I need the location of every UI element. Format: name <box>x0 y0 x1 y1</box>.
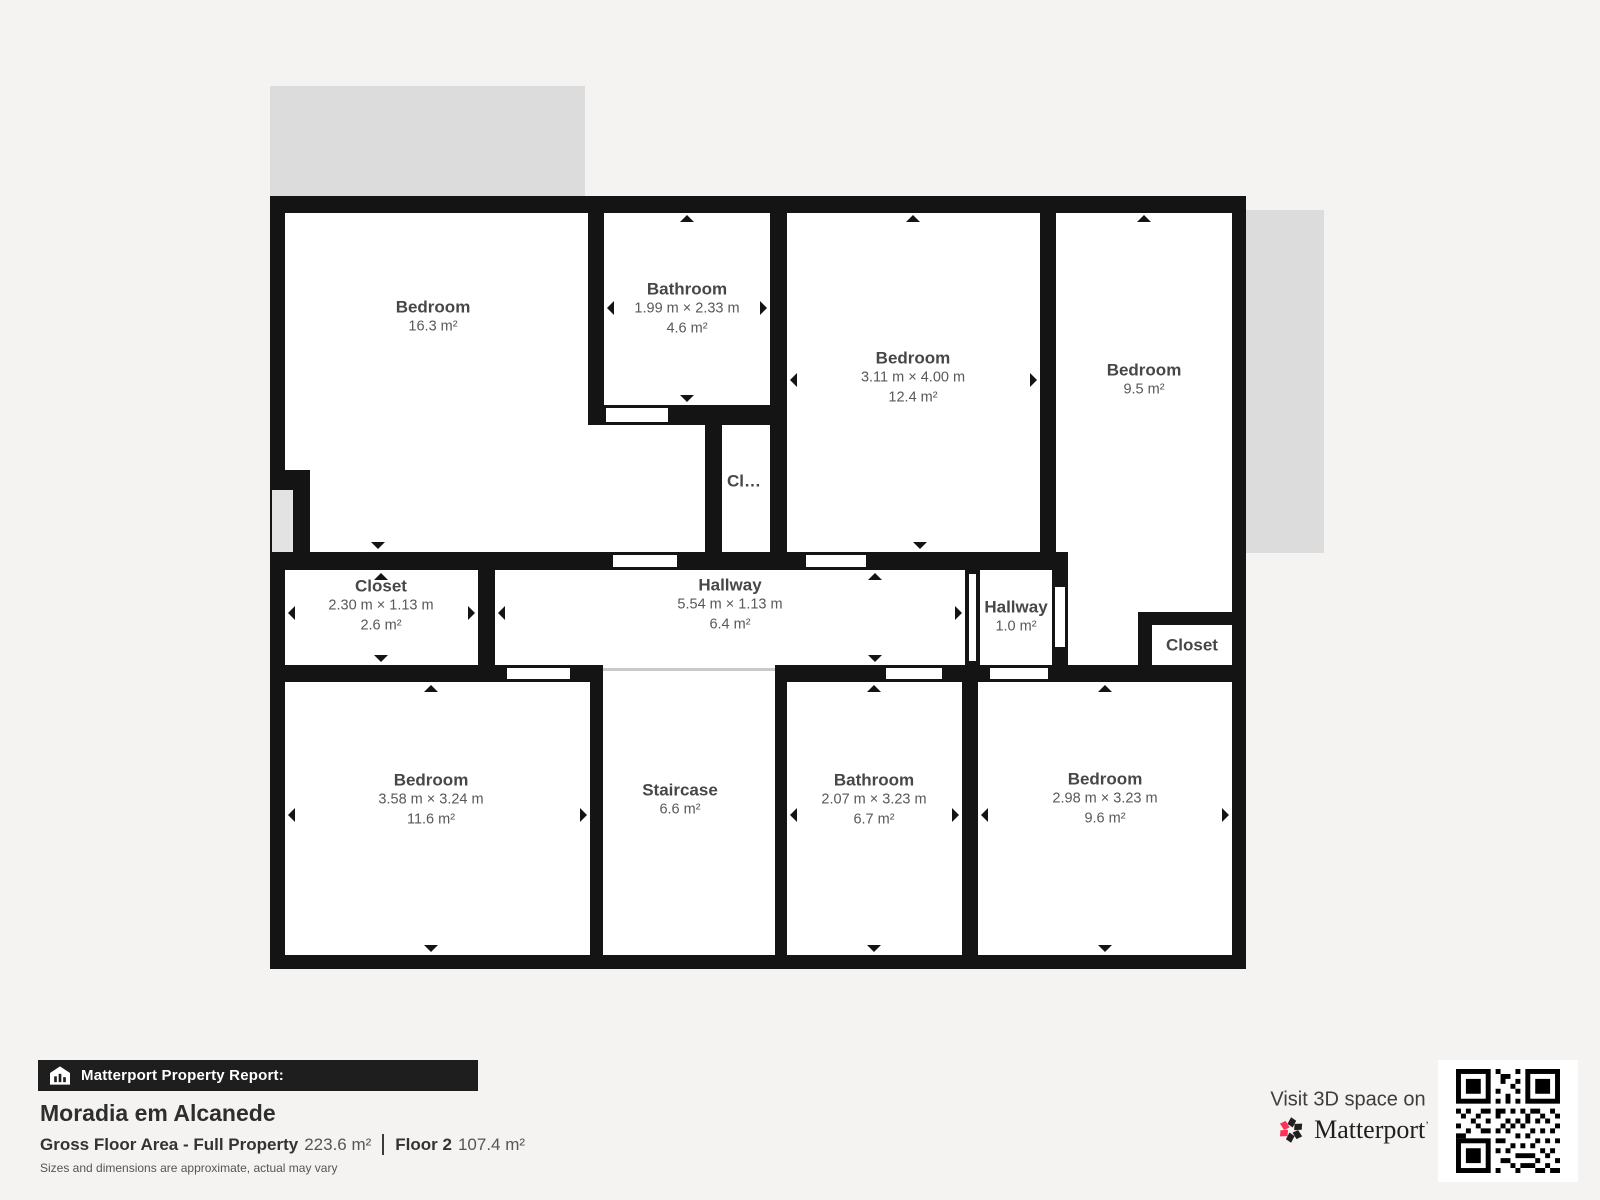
matterport-logo-icon <box>1275 1114 1307 1146</box>
room-label-bathroom-67: Bathroom 2.07 m × 3.23 m 6.7 m² <box>821 771 926 830</box>
door-opening-hall-to-bathroom67 <box>886 668 942 679</box>
area-stats: Gross Floor Area - Full Property223.6 m²… <box>40 1134 525 1155</box>
dimension-arrow <box>913 542 927 549</box>
balcony-top-left <box>270 86 585 198</box>
dimension-arrow <box>790 808 797 822</box>
dimension-arrow <box>580 808 587 822</box>
dimension-arrow <box>868 655 882 662</box>
wall-notch-step <box>270 470 310 490</box>
dimension-arrow <box>868 573 882 580</box>
room-floor-bedroom-16-ext <box>285 425 705 552</box>
dimension-arrow <box>371 542 385 549</box>
room-label-bedroom-124: Bedroom 3.11 m × 4.00 m 12.4 m² <box>861 349 965 408</box>
dimension-arrow <box>424 945 438 952</box>
visit-3d-text: Visit 3D space on <box>1270 1089 1425 1112</box>
gross-area-stat: Gross Floor Area - Full Property223.6 m² <box>40 1135 371 1155</box>
window-strip <box>272 490 293 552</box>
room-label-closet-cl: Cl… <box>727 472 761 491</box>
room-label-bedroom-116: Bedroom 3.58 m × 3.24 m 11.6 m² <box>378 771 483 830</box>
dimension-arrow <box>607 301 614 315</box>
room-floor-bedroom-95-low <box>1068 612 1138 665</box>
dimension-arrow <box>790 373 797 387</box>
dimension-arrow <box>1222 808 1229 822</box>
door-opening-hall-to-bedroom116 <box>507 668 570 679</box>
wall-notch-side <box>293 490 310 552</box>
dimension-arrow <box>906 215 920 222</box>
room-label-closet-right: Closet <box>1166 636 1218 655</box>
door-opening-between-hallways <box>969 574 976 661</box>
room-label-hallway-64: Hallway 5.54 m × 1.13 m 6.4 m² <box>677 576 782 635</box>
dimension-arrow <box>867 685 881 692</box>
room-floor-bedroom-95-mid <box>1068 552 1232 612</box>
door-opening-hall10-to-bedroom96 <box>990 668 1048 679</box>
stat-divider <box>382 1134 384 1155</box>
dimension-arrow <box>1098 945 1112 952</box>
disclaimer-text: Sizes and dimensions are approximate, ac… <box>40 1161 337 1175</box>
property-name: Moradia em Alcanede <box>40 1100 276 1127</box>
door-opening-hall-to-bedroom16 <box>613 555 677 567</box>
report-bar: Matterport Property Report: <box>38 1060 478 1091</box>
room-label-bedroom-96: Bedroom 2.98 m × 3.23 m 9.6 m² <box>1052 770 1157 829</box>
dimension-arrow <box>498 606 505 620</box>
dimension-arrow <box>952 808 959 822</box>
dimension-arrow <box>424 685 438 692</box>
dimension-arrow <box>680 395 694 402</box>
dimension-arrow <box>981 808 988 822</box>
report-bar-title: Matterport Property Report: <box>81 1067 284 1084</box>
dimension-arrow <box>955 606 962 620</box>
dimension-arrow <box>468 606 475 620</box>
dimension-arrow <box>867 945 881 952</box>
room-label-bedroom-16: Bedroom 16.3 m² <box>396 298 471 337</box>
qr-code <box>1456 1069 1560 1173</box>
room-label-hallway-10: Hallway 1.0 m² <box>984 598 1047 637</box>
dimension-arrow <box>680 215 694 222</box>
room-label-bathroom-46: Bathroom 1.99 m × 2.33 m 4.6 m² <box>634 280 739 339</box>
room-label-staircase: Staircase 6.6 m² <box>642 781 718 820</box>
door-opening-hall10-to-bedroom95 <box>1055 587 1065 647</box>
dimension-arrow <box>1098 685 1112 692</box>
dimension-arrow <box>760 301 767 315</box>
balcony-right <box>1246 210 1324 553</box>
qr-code-card <box>1438 1060 1578 1182</box>
matterport-brand: Matterport’ <box>1275 1114 1429 1146</box>
staircase-open-edge <box>603 668 775 671</box>
door-opening-hall-to-bedroom124 <box>806 555 866 567</box>
matterport-brand-text: Matterport’ <box>1314 1115 1429 1145</box>
room-label-bedroom-95: Bedroom 9.5 m² <box>1107 361 1182 400</box>
dimension-arrow <box>288 606 295 620</box>
dimension-arrow <box>288 808 295 822</box>
dimension-arrow <box>1137 215 1151 222</box>
room-label-closet-26: Closet 2.30 m × 1.13 m 2.6 m² <box>328 577 433 636</box>
dimension-arrow <box>1030 373 1037 387</box>
floor-area-stat: Floor 2107.4 m² <box>395 1135 525 1155</box>
door-opening-bathroom-46 <box>606 408 668 422</box>
dimension-arrow <box>374 655 388 662</box>
house-chart-icon <box>50 1066 70 1085</box>
